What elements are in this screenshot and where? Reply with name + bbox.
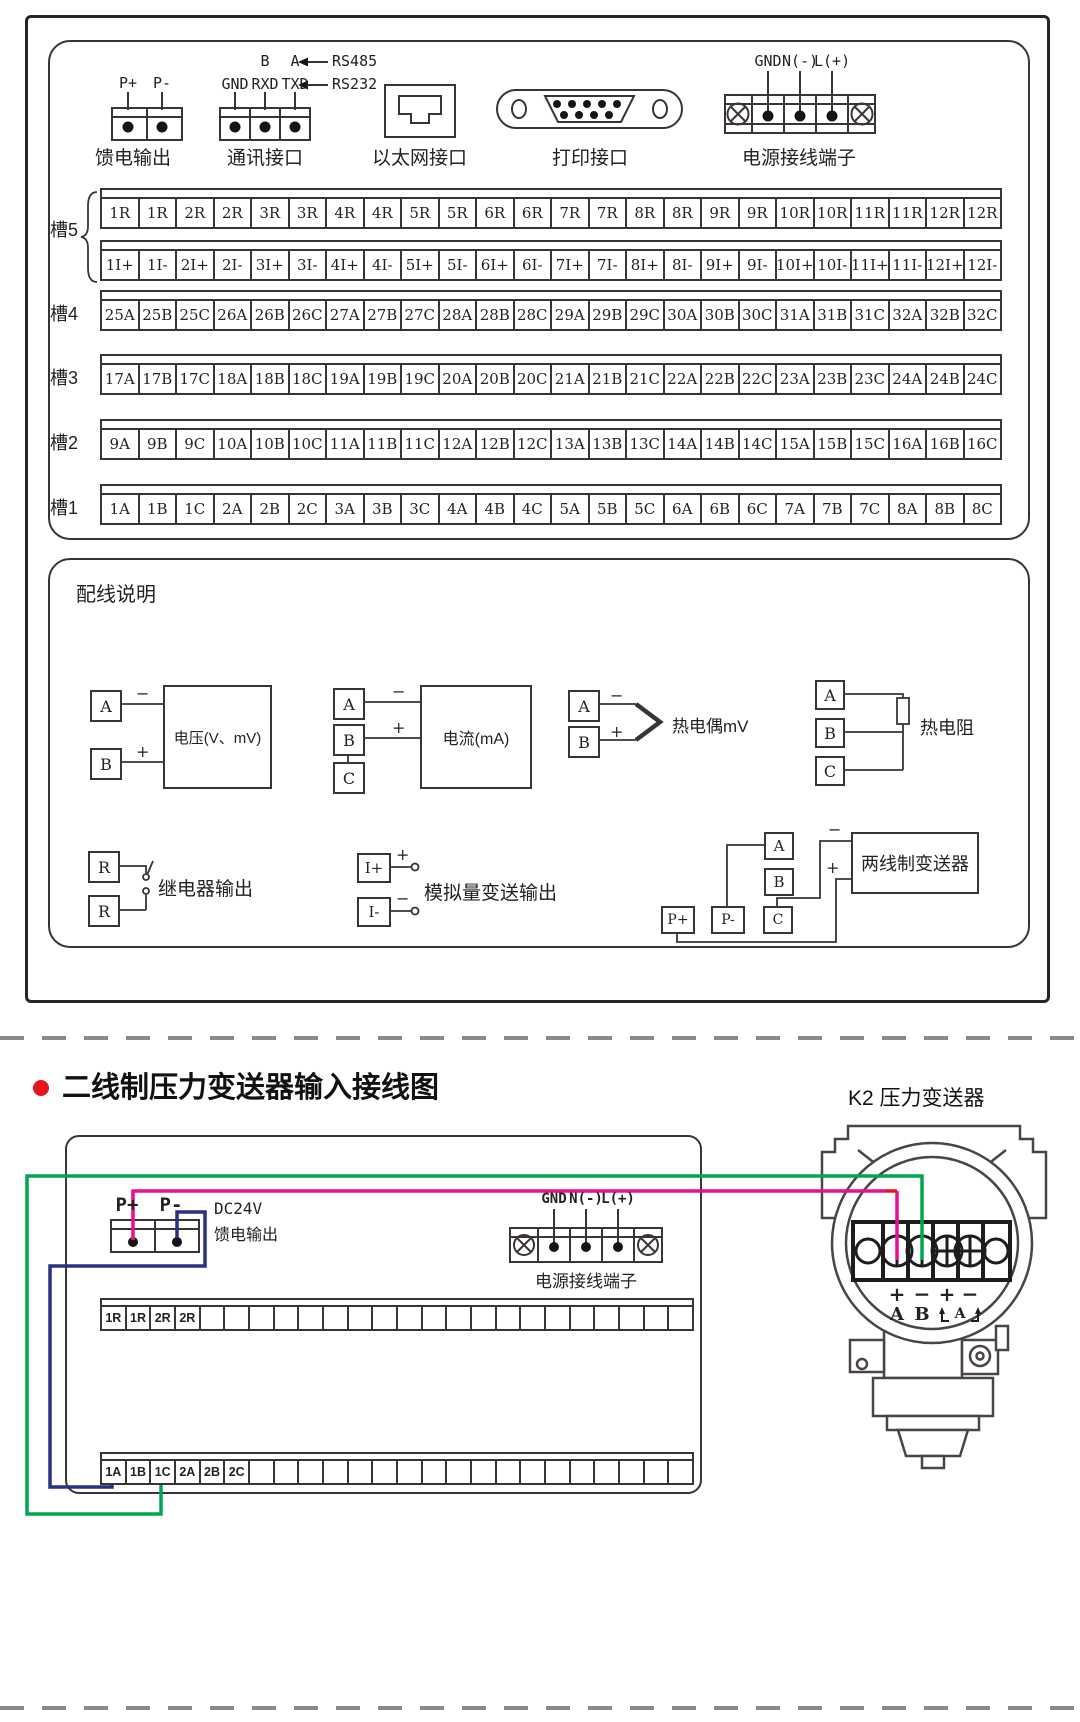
terminal-cell: [546, 1461, 571, 1483]
power-l-label: L(+): [814, 52, 850, 70]
slot5-label: 槽5: [50, 216, 78, 242]
terminal-cell: 11R: [890, 199, 928, 227]
slot4-label: 槽4: [50, 300, 78, 326]
analog-output-caption: 模拟量变送输出: [424, 878, 557, 905]
terminal-cell: 6A: [665, 495, 703, 523]
terminal-cell: 6R: [515, 199, 553, 227]
terminal-cell: [349, 1461, 374, 1483]
rtd-caption: 热电阻: [920, 714, 974, 740]
terminal-cell: 24A: [890, 365, 928, 393]
terminal-cell: 18A: [215, 365, 253, 393]
terminal-cell: [497, 1307, 522, 1329]
recorder-feed-caption: 馈电输出: [214, 1221, 278, 1245]
terminal-cell: 12I-: [965, 251, 1001, 279]
terminal-cell: [398, 1461, 423, 1483]
section-bullet-icon: [33, 1080, 49, 1096]
terminal-cell: 3R: [290, 199, 328, 227]
terminal-cell: 9B: [140, 430, 178, 458]
terminal-cell: 14B: [702, 430, 740, 458]
bottom-section-title: 二线制压力变送器输入接线图: [62, 1064, 439, 1106]
terminal-cell: 30A: [665, 301, 703, 329]
terminal-cell: [447, 1461, 472, 1483]
terminal-cell: 15A: [777, 430, 815, 458]
terminal-cell: 31A: [777, 301, 815, 329]
terminal-cell: 9C: [177, 430, 215, 458]
terminal-cell: 1I+: [102, 251, 140, 279]
terminal-cell: 31B: [815, 301, 853, 329]
recorder-top-strip: 1R1R2R2R: [100, 1298, 694, 1331]
rs232-label: RS232: [332, 75, 377, 93]
terminal-cell: 19B: [365, 365, 403, 393]
terminal-cell: 22C: [740, 365, 778, 393]
terminal-cell: [201, 1307, 226, 1329]
terminal-cell: 12I+: [927, 251, 965, 279]
terminal-cell: 4A: [440, 495, 478, 523]
terminal-cell: 1R: [102, 199, 140, 227]
terminal-cell: [620, 1461, 645, 1483]
terminal-cell: 10R: [815, 199, 853, 227]
rtd-terminal-b: B: [815, 718, 845, 748]
slot2-label: 槽2: [50, 429, 78, 455]
terminal-cell: 21A: [552, 365, 590, 393]
terminal-cell: 9I+: [702, 251, 740, 279]
terminal-cell: 32C: [965, 301, 1001, 329]
terminal-cell: 5B: [590, 495, 628, 523]
current-terminal-b: B: [333, 724, 365, 756]
aout-terminal-iplus: I+: [357, 853, 391, 883]
slot5-strip-row2: 1I+1I-2I+2I-3I+3I-4I+4I-5I+5I-6I+6I-7I+7…: [100, 240, 1002, 281]
terminal-cell: 11C: [402, 430, 440, 458]
terminal-cell: 2B: [252, 495, 290, 523]
terminal-cell: 14C: [740, 430, 778, 458]
current-plus: +: [392, 718, 405, 737]
terminal-cell: 11B: [365, 430, 403, 458]
terminal-cell: [250, 1461, 275, 1483]
terminal-cell: 2R: [176, 1307, 201, 1329]
terminal-cell: 4I+: [327, 251, 365, 279]
terminal-cell: 5R: [402, 199, 440, 227]
xmtr-minus1-label: −: [913, 1282, 931, 1306]
terminal-cell: 11I+: [852, 251, 890, 279]
power-n-label: N(-): [782, 52, 818, 70]
terminal-cell: 5I+: [402, 251, 440, 279]
terminal-cell: [595, 1307, 620, 1329]
terminal-cell: 1I-: [140, 251, 178, 279]
terminal-cell: 7R: [590, 199, 628, 227]
terminal-cell: 15B: [815, 430, 853, 458]
terminal-cell: 10I+: [777, 251, 815, 279]
terminal-cell: 8I-: [665, 251, 703, 279]
recorder-p-plus-label: P+: [109, 1194, 145, 1216]
terminal-cell: 7I-: [590, 251, 628, 279]
xmtr-b-label: B: [913, 1304, 931, 1325]
terminal-cell: 23A: [777, 365, 815, 393]
recorder-bottom-strip: 1A1B1C2A2B2C: [100, 1452, 694, 1485]
terminal-cell: 16A: [890, 430, 928, 458]
terminal-cell: 27B: [365, 301, 403, 329]
terminal-cell: 24B: [927, 365, 965, 393]
feed-p-plus-label: P+: [112, 74, 144, 92]
terminal-cell: [669, 1461, 692, 1483]
slot1-strip: 1A1B1C2A2B2C3A3B3C4A4B4C5A5B5C6A6B6C7A7B…: [100, 484, 1002, 525]
terminal-cell: 2R: [151, 1307, 176, 1329]
terminal-cell: 8R: [627, 199, 665, 227]
terminal-cell: 8I+: [627, 251, 665, 279]
slot3-label: 槽3: [50, 364, 78, 390]
terminal-cell: [595, 1461, 620, 1483]
terminal-cell: 10C: [290, 430, 328, 458]
slot4-strip: 25A25B25C26A26B26C27A27B27C28A28B28C29A2…: [100, 290, 1002, 331]
comm-port-caption: 通讯接口: [227, 143, 303, 170]
slot3-strip: 17A17B17C18A18B18C19A19B19C20A20B20C21A2…: [100, 354, 1002, 395]
terminal-cell: [546, 1307, 571, 1329]
terminal-cell: [373, 1461, 398, 1483]
terminal-cell: 27C: [402, 301, 440, 329]
terminal-cell: 2R: [215, 199, 253, 227]
terminal-cell: 6B: [702, 495, 740, 523]
terminal-cell: 9I-: [740, 251, 778, 279]
terminal-cell: 6R: [477, 199, 515, 227]
terminal-cell: 31C: [852, 301, 890, 329]
voltage-terminal-b: B: [90, 748, 122, 780]
terminal-cell: 2C: [225, 1461, 250, 1483]
terminal-cell: 10B: [252, 430, 290, 458]
twowire-terminal-pplus: P+: [661, 906, 695, 934]
terminal-cell: 7R: [552, 199, 590, 227]
terminal-cell: 25A: [102, 301, 140, 329]
terminal-cell: 29A: [552, 301, 590, 329]
terminal-cell: [373, 1307, 398, 1329]
terminal-cell: 8R: [665, 199, 703, 227]
terminal-cell: [669, 1307, 692, 1329]
ethernet-caption: 以太网接口: [372, 143, 467, 170]
terminal-cell: 2A: [176, 1461, 201, 1483]
terminal-cell: 32A: [890, 301, 928, 329]
terminal-cell: [472, 1461, 497, 1483]
terminal-cell: 15C: [852, 430, 890, 458]
tc-terminal-a: A: [568, 690, 600, 722]
terminal-cell: [275, 1307, 300, 1329]
slot1-label: 槽1: [50, 494, 78, 520]
terminal-cell: 2A: [215, 495, 253, 523]
voltage-terminal-a: A: [90, 690, 122, 722]
terminal-cell: [521, 1461, 546, 1483]
terminal-cell: 13C: [627, 430, 665, 458]
twowire-terminal-pminus: P-: [711, 906, 745, 934]
terminal-cell: 13A: [552, 430, 590, 458]
terminal-cell: [423, 1307, 448, 1329]
dashed-separator-top: [0, 1036, 1080, 1040]
terminal-cell: 3I-: [290, 251, 328, 279]
twowire-terminal-b: B: [764, 868, 794, 896]
recorder-l-label: L(+): [598, 1191, 638, 1207]
pressure-transmitter-drawing: [822, 1126, 1046, 1468]
terminal-cell: 19C: [402, 365, 440, 393]
terminal-cell: 20A: [440, 365, 478, 393]
terminal-cell: 7I+: [552, 251, 590, 279]
power-terminal-caption: 电源接线端子: [742, 143, 856, 170]
twowire-terminal-c: C: [763, 906, 793, 934]
terminal-cell: 18C: [290, 365, 328, 393]
terminal-cell: 10A: [215, 430, 253, 458]
tc-plus: +: [610, 722, 623, 741]
terminal-cell: 4B: [477, 495, 515, 523]
feed-output-caption: 馈电输出: [95, 143, 171, 170]
terminal-cell: 12C: [515, 430, 553, 458]
terminal-cell: [447, 1307, 472, 1329]
terminal-cell: 28A: [440, 301, 478, 329]
terminal-cell: 3R: [252, 199, 290, 227]
terminal-cell: 21C: [627, 365, 665, 393]
dashed-separator-bottom: [0, 1706, 1080, 1710]
k2-transmitter-title: K2 压力变送器: [848, 1082, 985, 1112]
terminal-cell: 12A: [440, 430, 478, 458]
terminal-cell: 3B: [365, 495, 403, 523]
terminal-cell: 17B: [140, 365, 178, 393]
terminal-cell: 3I+: [252, 251, 290, 279]
terminal-cell: [521, 1307, 546, 1329]
rtd-terminal-a: A: [815, 680, 845, 710]
terminal-cell: [472, 1307, 497, 1329]
terminal-cell: [225, 1307, 250, 1329]
aout-plus: +: [396, 845, 409, 864]
terminal-cell: 25B: [140, 301, 178, 329]
terminal-cell: 2C: [290, 495, 328, 523]
terminal-cell: 4I-: [365, 251, 403, 279]
terminal-cell: 8B: [927, 495, 965, 523]
terminal-cell: [324, 1307, 349, 1329]
transmitter-terminal-block: [853, 1222, 1010, 1280]
terminal-cell: 32B: [927, 301, 965, 329]
terminal-cell: [620, 1307, 645, 1329]
terminal-cell: 1A: [102, 1461, 127, 1483]
terminal-cell: 2R: [177, 199, 215, 227]
recorder-power-caption: 电源接线端子: [524, 1267, 648, 1292]
terminal-cell: 1R: [127, 1307, 152, 1329]
terminal-cell: 3C: [402, 495, 440, 523]
terminal-cell: 12B: [477, 430, 515, 458]
terminal-cell: [571, 1307, 596, 1329]
terminal-cell: [250, 1307, 275, 1329]
terminal-cell: 17A: [102, 365, 140, 393]
terminal-cell: 12R: [965, 199, 1001, 227]
xmtr-minus2-label: −: [961, 1282, 979, 1306]
xmtr-plus1-label: +: [888, 1282, 906, 1306]
rs485-label: RS485: [332, 52, 377, 70]
terminal-cell: [299, 1461, 324, 1483]
rtd-terminal-c: C: [815, 756, 845, 786]
terminal-cell: 7C: [852, 495, 890, 523]
xmtr-alt-a-label: A: [951, 1306, 969, 1322]
slot2-strip: 9A9B9C10A10B10C11A11B11C12A12B12C13A13B1…: [100, 419, 1002, 460]
terminal-cell: 9R: [740, 199, 778, 227]
terminal-cell: 14A: [665, 430, 703, 458]
terminal-cell: 5I-: [440, 251, 478, 279]
twowire-plus: +: [826, 858, 839, 877]
twowire-transmitter-box: 两线制变送器: [851, 832, 979, 894]
terminal-cell: 1R: [140, 199, 178, 227]
terminal-cell: 3A: [327, 495, 365, 523]
twowire-minus: −: [828, 820, 841, 839]
terminal-cell: 1R: [102, 1307, 127, 1329]
terminal-cell: 30B: [702, 301, 740, 329]
xmtr-a-label: A: [888, 1304, 906, 1325]
terminal-cell: 19A: [327, 365, 365, 393]
current-terminal-c: C: [333, 762, 365, 794]
terminal-cell: 27A: [327, 301, 365, 329]
terminal-cell: 2B: [201, 1461, 226, 1483]
recorder-dc24v-label: DC24V: [214, 1199, 262, 1218]
comm-rxd-label: RXD: [249, 75, 281, 93]
terminal-cell: [497, 1461, 522, 1483]
terminal-cell: 5R: [440, 199, 478, 227]
terminal-cell: 10I-: [815, 251, 853, 279]
voltage-input-box: 电压(V、mV): [163, 685, 272, 789]
terminal-cell: 24C: [965, 365, 1001, 393]
comm-txd-label: TXD: [279, 75, 311, 93]
relay-terminal-r1: R: [88, 851, 120, 883]
terminal-cell: 28B: [477, 301, 515, 329]
terminal-cell: 16B: [927, 430, 965, 458]
terminal-cell: 18B: [252, 365, 290, 393]
feed-p-minus-label: P-: [146, 74, 178, 92]
current-minus: −: [392, 682, 405, 701]
terminal-cell: 20C: [515, 365, 553, 393]
terminal-cell: [398, 1307, 423, 1329]
terminal-cell: 4C: [515, 495, 553, 523]
relay-terminal-r2: R: [88, 895, 120, 927]
terminal-cell: [324, 1461, 349, 1483]
terminal-cell: 29B: [590, 301, 628, 329]
aout-minus: −: [396, 889, 409, 908]
terminal-cell: 11A: [327, 430, 365, 458]
terminal-cell: [423, 1461, 448, 1483]
terminal-cell: 26A: [215, 301, 253, 329]
terminal-cell: [299, 1307, 324, 1329]
terminal-cell: 17C: [177, 365, 215, 393]
terminal-cell: 9R: [702, 199, 740, 227]
terminal-cell: 2I-: [215, 251, 253, 279]
thermocouple-caption: 热电偶mV: [672, 712, 749, 737]
comm-b-label: B: [257, 52, 273, 70]
terminal-cell: 2I+: [177, 251, 215, 279]
terminal-cell: 5C: [627, 495, 665, 523]
terminal-cell: 7A: [777, 495, 815, 523]
tc-terminal-b: B: [568, 726, 600, 758]
wiring-diagram-page: P+ P- 馈电输出 B A RS485 GND RXD TXD RS232 通…: [0, 0, 1080, 1722]
terminal-cell: 1C: [177, 495, 215, 523]
terminal-cell: 26B: [252, 301, 290, 329]
terminal-cell: 13B: [590, 430, 628, 458]
current-input-box: 电流(mA): [420, 685, 532, 789]
terminal-cell: [645, 1461, 670, 1483]
terminal-cell: 20B: [477, 365, 515, 393]
terminal-cell: 6I+: [477, 251, 515, 279]
terminal-cell: 29C: [627, 301, 665, 329]
terminal-cell: 1B: [140, 495, 178, 523]
terminal-cell: 28C: [515, 301, 553, 329]
terminal-cell: [349, 1307, 374, 1329]
printer-caption: 打印接口: [552, 143, 628, 170]
terminal-cell: 30C: [740, 301, 778, 329]
terminal-cell: 25C: [177, 301, 215, 329]
terminal-cell: 4R: [365, 199, 403, 227]
terminal-cell: 9A: [102, 430, 140, 458]
terminal-cell: 11I-: [890, 251, 928, 279]
relay-output-caption: 继电器输出: [158, 874, 253, 901]
twowire-terminal-a: A: [764, 832, 794, 860]
wiring-notes-title: 配线说明: [76, 578, 156, 607]
terminal-cell: 23B: [815, 365, 853, 393]
current-terminal-a: A: [333, 688, 365, 720]
terminal-cell: 23C: [852, 365, 890, 393]
terminal-cell: 16C: [965, 430, 1001, 458]
comm-a-label: A: [287, 52, 303, 70]
tc-minus: −: [610, 686, 623, 705]
aout-terminal-iminus: I-: [357, 897, 391, 927]
terminal-cell: 10R: [777, 199, 815, 227]
terminal-cell: 22A: [665, 365, 703, 393]
terminal-cell: 6C: [740, 495, 778, 523]
terminal-cell: 11R: [852, 199, 890, 227]
power-gnd-label: GND: [750, 52, 786, 70]
recorder-p-minus-label: P-: [153, 1194, 189, 1216]
terminal-cell: 1B: [127, 1461, 152, 1483]
terminal-cell: 21B: [590, 365, 628, 393]
terminal-cell: 8C: [965, 495, 1001, 523]
terminal-cell: 5A: [552, 495, 590, 523]
terminal-cell: 12R: [927, 199, 965, 227]
slot5-strip-row1: 1R1R2R2R3R3R4R4R5R5R6R6R7R7R8R8R9R9R10R1…: [100, 188, 1002, 229]
terminal-cell: 6I-: [515, 251, 553, 279]
terminal-cell: [571, 1461, 596, 1483]
terminal-cell: [645, 1307, 670, 1329]
voltage-plus: +: [136, 742, 149, 761]
terminal-cell: 8A: [890, 495, 928, 523]
terminal-cell: 4R: [327, 199, 365, 227]
terminal-cell: 22B: [702, 365, 740, 393]
terminal-cell: 26C: [290, 301, 328, 329]
terminal-cell: 7B: [815, 495, 853, 523]
terminal-cell: [275, 1461, 300, 1483]
voltage-minus: −: [136, 684, 149, 703]
xmtr-plus2-label: +: [938, 1282, 956, 1306]
terminal-cell: 1C: [151, 1461, 176, 1483]
terminal-cell: 1A: [102, 495, 140, 523]
comm-gnd-label: GND: [219, 75, 251, 93]
